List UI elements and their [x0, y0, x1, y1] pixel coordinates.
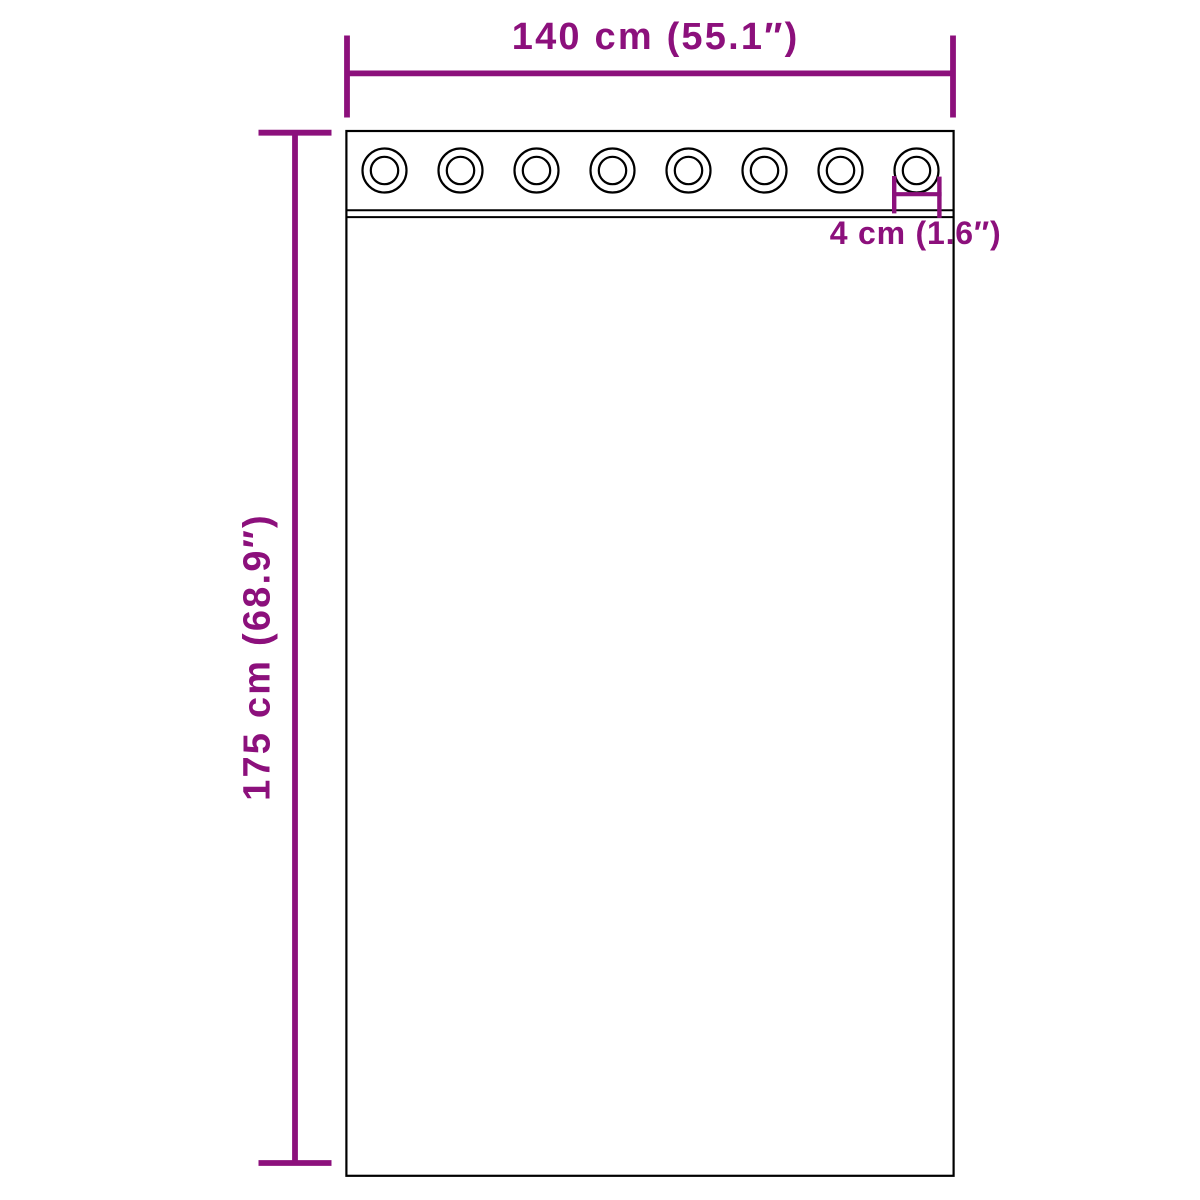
svg-text:175 cm (68.9″): 175 cm (68.9″)	[237, 513, 279, 801]
svg-text:140 cm (55.1″): 140 cm (55.1″)	[512, 16, 800, 58]
svg-text:4 cm (1.6″): 4 cm (1.6″)	[830, 215, 1002, 251]
